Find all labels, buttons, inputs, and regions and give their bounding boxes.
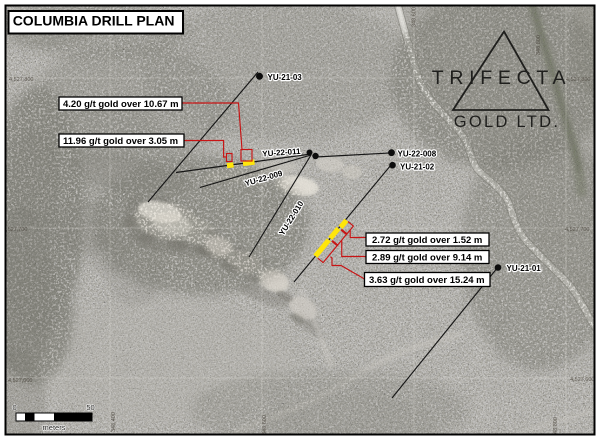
- svg-text:2.72 g/t gold over 1.52 m: 2.72 g/t gold over 1.52 m: [372, 235, 482, 246]
- svg-text:4,527,600: 4,527,600: [570, 377, 594, 383]
- svg-text:348,600: 348,600: [262, 415, 268, 435]
- svg-text:348,800: 348,800: [536, 35, 542, 55]
- svg-text:348,400: 348,400: [111, 412, 117, 432]
- svg-text:4,527,800: 4,527,800: [9, 77, 33, 83]
- svg-text:11.96 g/t gold over 3.05 m: 11.96 g/t gold over 3.05 m: [63, 136, 178, 147]
- svg-text:2.89 g/t gold over 9.14 m: 2.89 g/t gold over 9.14 m: [372, 253, 482, 264]
- svg-text:348,600: 348,600: [412, 7, 418, 27]
- svg-text:COLUMBIA DRILL PLAN: COLUMBIA DRILL PLAN: [13, 13, 175, 29]
- svg-text:4,527,600: 4,527,600: [8, 378, 32, 384]
- svg-text:4,527,700: 4,527,700: [565, 227, 589, 233]
- svg-text:4,527,700: 4,527,700: [3, 227, 27, 233]
- svg-text:YU-22-008: YU-22-008: [398, 150, 437, 159]
- svg-text:YU-21-02: YU-21-02: [400, 163, 435, 172]
- svg-text:YU-21-03: YU-21-03: [268, 73, 303, 82]
- svg-text:YU-21-01: YU-21-01: [507, 264, 542, 273]
- svg-text:TRIFECTA: TRIFECTA: [432, 67, 571, 89]
- svg-text:0: 0: [13, 403, 17, 412]
- svg-text:3.63 g/t gold over 15.24 m: 3.63 g/t gold over 15.24 m: [369, 275, 485, 286]
- svg-text:4.20 g/t gold over 10.67 m: 4.20 g/t gold over 10.67 m: [63, 99, 179, 110]
- svg-text:meters: meters: [43, 423, 66, 432]
- svg-text:GOLD LTD.: GOLD LTD.: [454, 113, 561, 131]
- svg-text:50: 50: [86, 403, 94, 412]
